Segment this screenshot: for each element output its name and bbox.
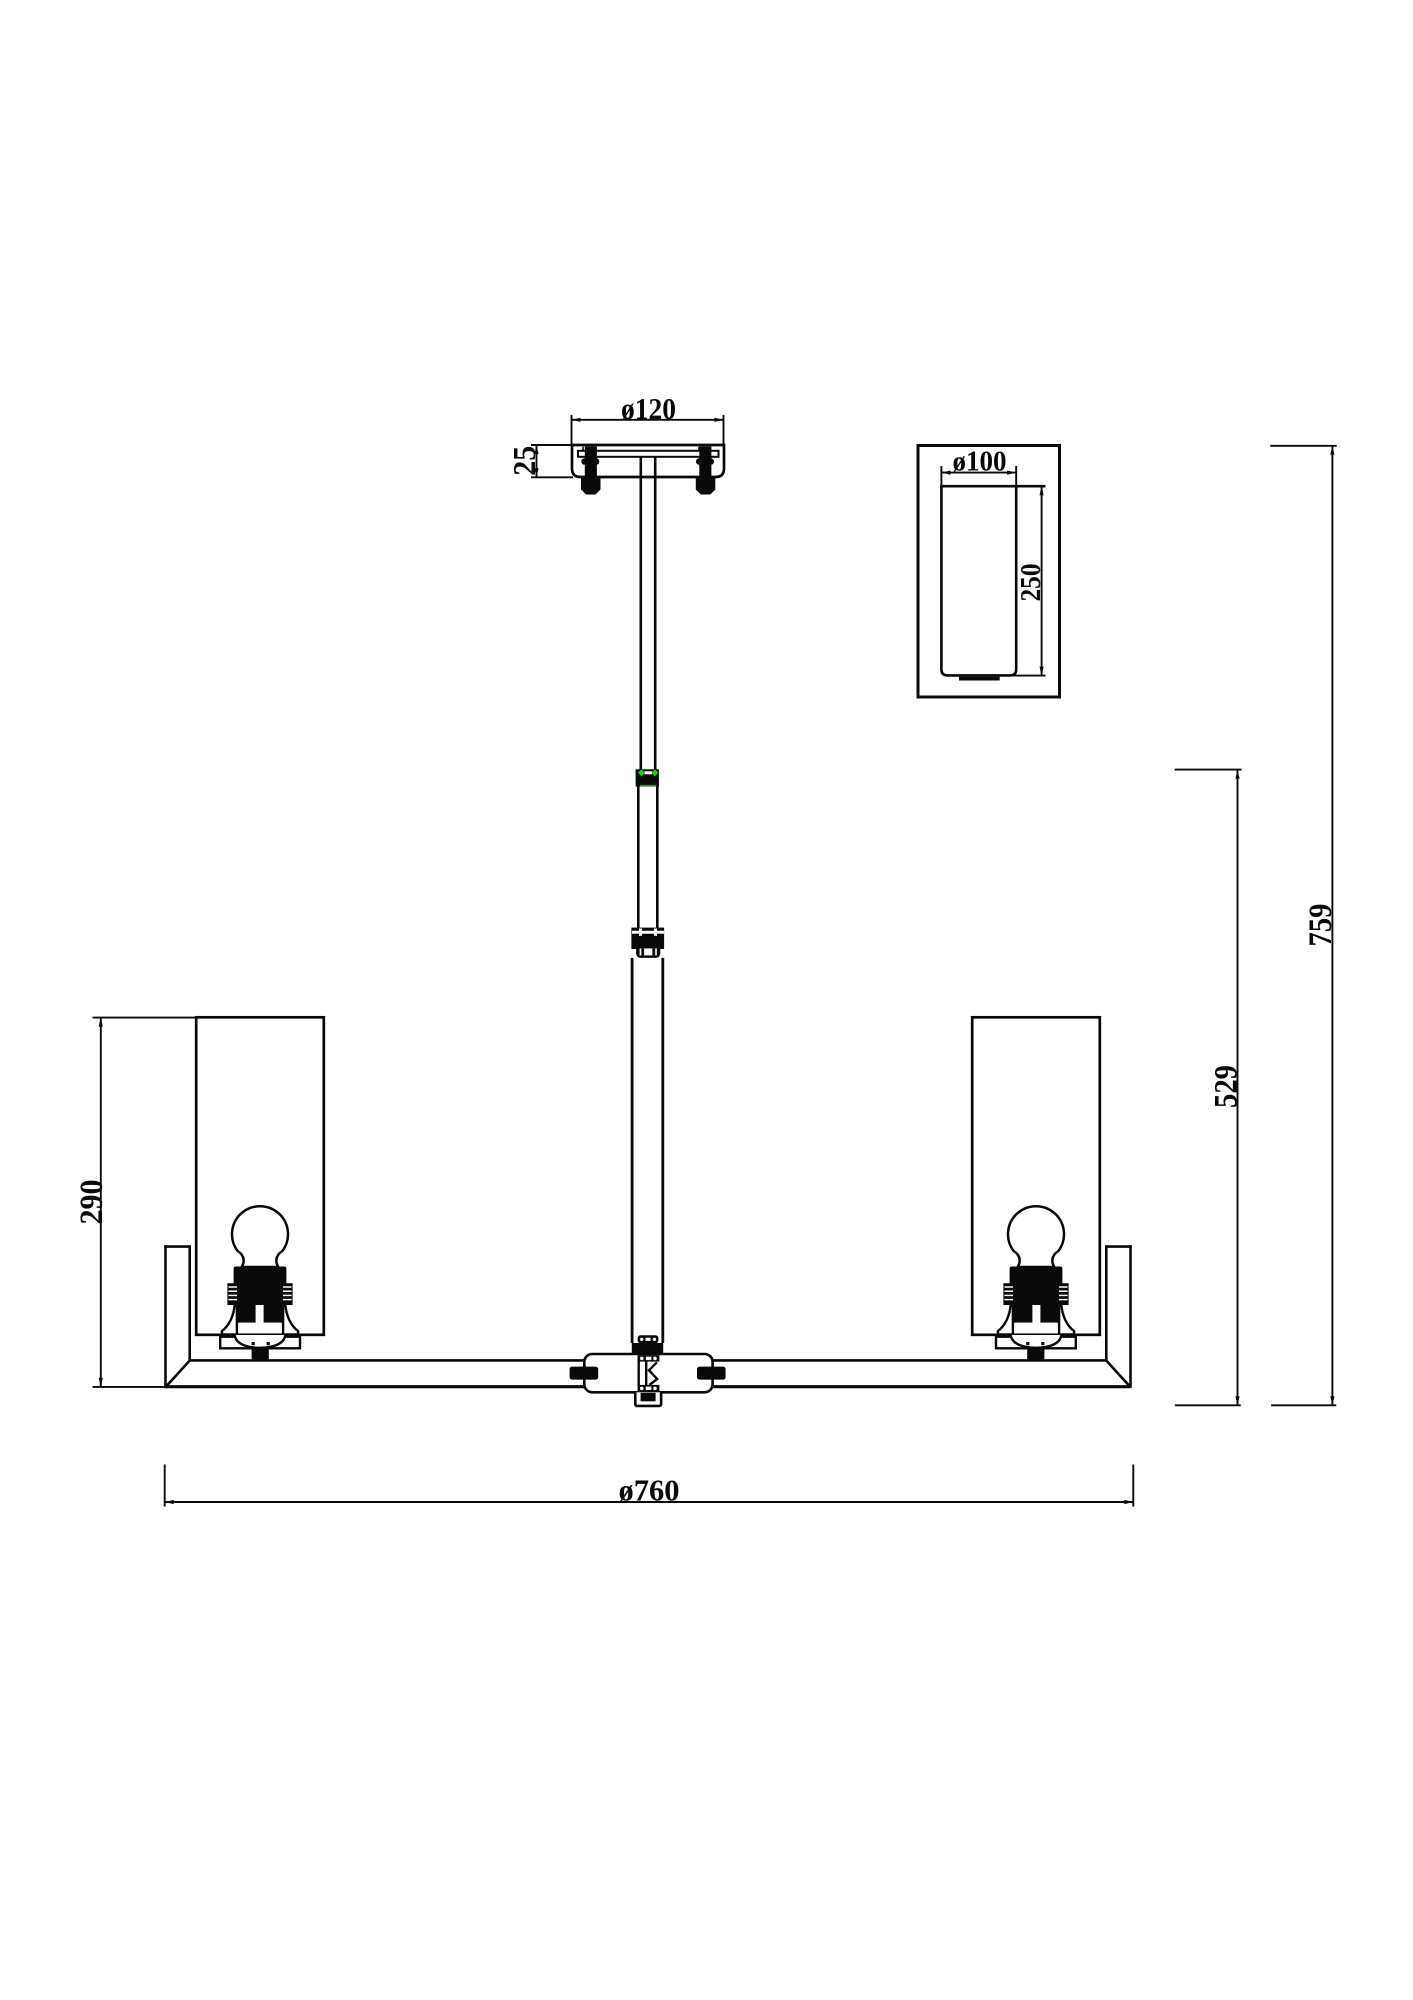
svg-text:529: 529 xyxy=(1208,1065,1244,1108)
svg-text:759: 759 xyxy=(1303,904,1339,947)
svg-text:290: 290 xyxy=(74,1180,110,1225)
